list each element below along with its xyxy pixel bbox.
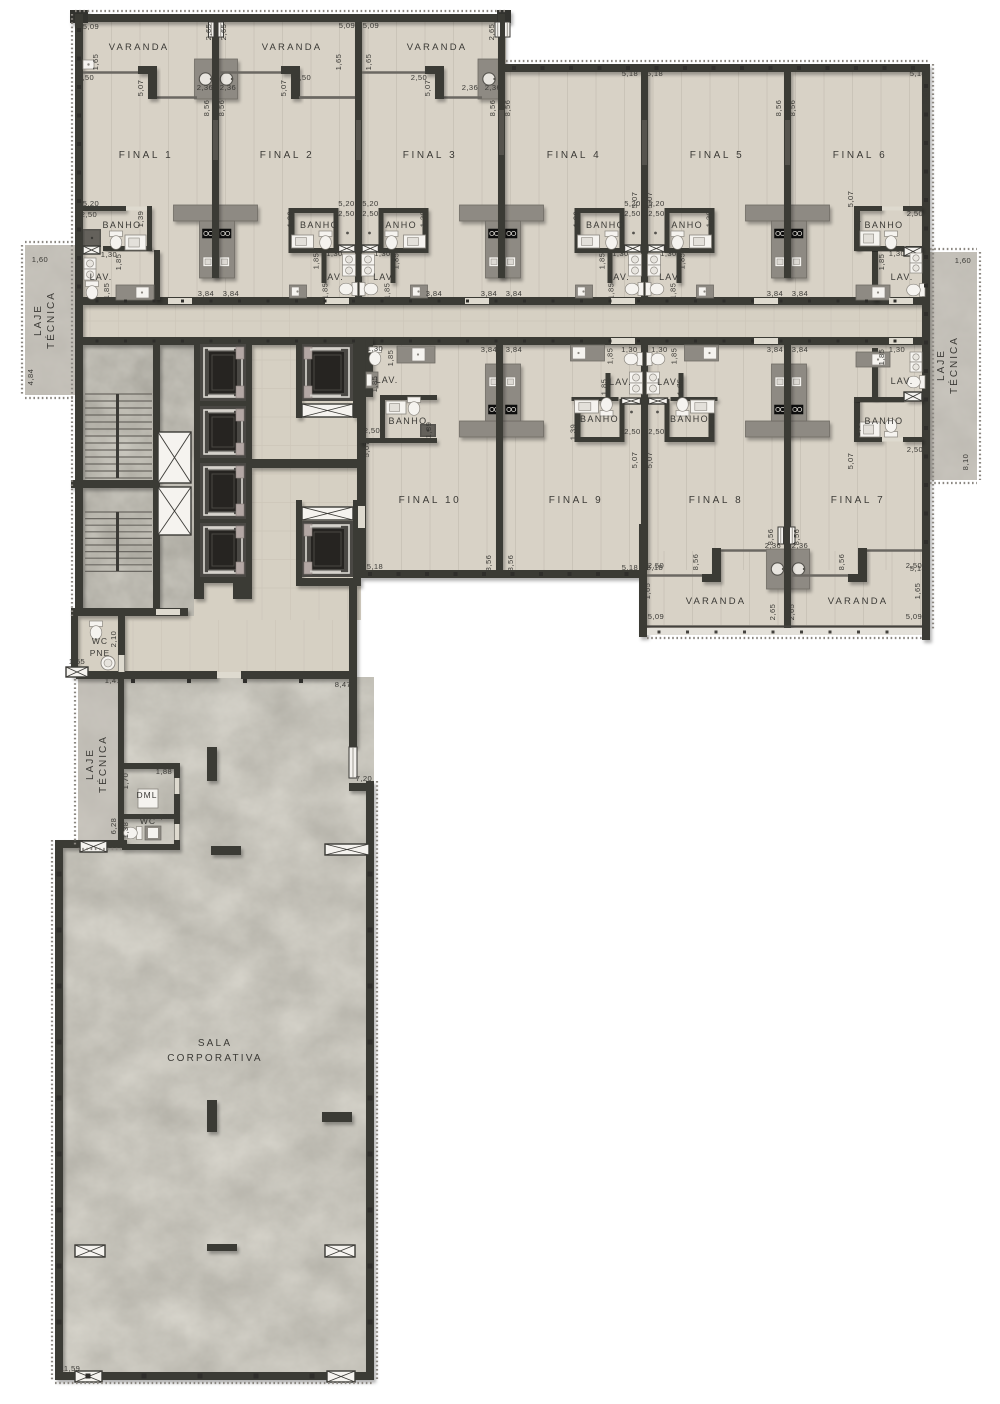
svg-text:VARANDA: VARANDA [262,42,323,53]
svg-text:2,50: 2,50 [81,210,97,219]
svg-text:7,20: 7,20 [356,774,372,783]
svg-text:8,56: 8,56 [837,554,846,571]
svg-text:1,39: 1,39 [853,211,862,228]
svg-text:CORPORATIVA: CORPORATIVA [167,1053,263,1064]
svg-text:1,85: 1,85 [670,348,679,365]
svg-text:5,09: 5,09 [906,612,922,621]
svg-text:2,36: 2,36 [792,541,808,550]
svg-text:8,56: 8,56 [202,100,211,117]
svg-text:1,85: 1,85 [877,254,886,271]
svg-text:5,07: 5,07 [630,452,639,469]
svg-text:1,39: 1,39 [286,211,295,227]
svg-text:PNE: PNE [90,648,110,658]
svg-text:BANHO: BANHO [378,220,417,230]
svg-text:LAV.: LAV. [891,272,914,282]
svg-text:2,36: 2,36 [462,83,478,92]
svg-text:1,85: 1,85 [370,376,379,393]
svg-text:1,88: 1,88 [156,767,172,776]
svg-text:WC: WC [140,816,156,826]
svg-text:2,36: 2,36 [197,83,213,92]
svg-text:2,50: 2,50 [411,73,427,82]
svg-text:3,84: 3,84 [792,345,808,354]
svg-text:LAV.: LAV. [609,377,632,387]
svg-text:BANHO: BANHO [670,414,709,424]
svg-text:1,85: 1,85 [607,283,616,300]
svg-text:5,20: 5,20 [338,199,354,208]
svg-text:1,65: 1,65 [364,54,373,71]
svg-text:LAJE: LAJE [85,748,96,780]
svg-text:2,10: 2,10 [109,631,118,648]
svg-text:1,41: 1,41 [105,676,121,685]
svg-text:1,85: 1,85 [392,253,401,270]
svg-text:1,85: 1,85 [102,283,111,300]
svg-text:5,09: 5,09 [363,21,379,30]
svg-text:1,39: 1,39 [707,424,716,440]
svg-text:FINAL 9: FINAL 9 [549,495,604,506]
svg-text:BANHO: BANHO [864,416,903,426]
svg-text:5,18: 5,18 [910,69,926,78]
svg-text:1,39: 1,39 [572,211,581,227]
svg-text:FINAL 8: FINAL 8 [689,495,744,506]
svg-text:2,50: 2,50 [907,209,923,218]
svg-text:1,39: 1,39 [424,422,433,439]
svg-text:LAV.: LAV. [90,272,113,282]
svg-text:11,59: 11,59 [60,1364,80,1373]
svg-text:2,50: 2,50 [648,561,664,570]
svg-text:2,50: 2,50 [624,209,640,218]
svg-text:1,65: 1,65 [643,583,652,600]
svg-text:2,50: 2,50 [295,73,311,82]
svg-text:1,39: 1,39 [853,420,862,437]
svg-text:DML: DML [137,790,158,800]
svg-text:1,30: 1,30 [374,249,390,258]
svg-text:1,39: 1,39 [569,424,578,440]
svg-text:1,85: 1,85 [312,253,321,270]
svg-text:LAV.: LAV. [321,272,344,282]
svg-text:FINAL 10: FINAL 10 [399,495,462,506]
svg-text:8,56: 8,56 [506,555,515,572]
svg-text:1,60: 1,60 [32,255,48,264]
svg-text:8,56: 8,56 [488,100,497,117]
svg-text:1,39: 1,39 [419,211,428,227]
svg-text:1,55: 1,55 [69,657,85,666]
svg-text:FINAL 5: FINAL 5 [690,150,745,161]
svg-text:5,20: 5,20 [83,199,99,208]
svg-text:2,50: 2,50 [648,427,664,436]
svg-text:1,85: 1,85 [676,379,685,396]
svg-text:8,47: 8,47 [335,680,351,689]
svg-text:5,18: 5,18 [367,562,383,571]
svg-text:1,85: 1,85 [669,283,678,300]
svg-text:5,18: 5,18 [622,69,638,78]
svg-text:1,30: 1,30 [326,249,342,258]
svg-text:2,50: 2,50 [906,561,922,570]
svg-text:1,85: 1,85 [678,253,687,270]
svg-text:1,85: 1,85 [386,350,395,367]
svg-text:WC: WC [92,636,108,646]
svg-text:1,39: 1,39 [136,211,145,228]
svg-text:3,84: 3,84 [426,289,442,298]
svg-text:5,07: 5,07 [645,452,654,469]
svg-text:BANHO: BANHO [580,414,619,424]
svg-text:FINAL 3: FINAL 3 [403,150,458,161]
svg-text:5,07: 5,07 [846,191,855,208]
svg-text:FINAL 7: FINAL 7 [831,495,886,506]
svg-text:8,56: 8,56 [788,100,797,117]
svg-text:2,50: 2,50 [624,427,640,436]
svg-text:VARANDA: VARANDA [109,42,170,53]
svg-text:1,88: 1,88 [156,812,172,821]
svg-text:5,07: 5,07 [846,453,855,470]
svg-text:2,50: 2,50 [338,209,354,218]
svg-text:1,30: 1,30 [889,345,905,354]
svg-text:5,07: 5,07 [630,192,639,209]
svg-text:2,50: 2,50 [364,426,380,435]
svg-text:5,07: 5,07 [279,80,288,97]
svg-text:5,09: 5,09 [339,21,355,30]
svg-text:5,07: 5,07 [645,192,654,209]
svg-text:1,65: 1,65 [334,54,343,71]
svg-text:VARANDA: VARANDA [828,596,889,607]
svg-text:BANHO: BANHO [664,220,703,230]
svg-text:VARANDA: VARANDA [686,596,747,607]
svg-text:6,28: 6,28 [109,818,118,835]
svg-text:5,18: 5,18 [647,69,663,78]
svg-text:2,65: 2,65 [219,24,228,41]
svg-text:1,30: 1,30 [367,344,383,353]
svg-text:8,10: 8,10 [961,454,970,471]
svg-text:3,84: 3,84 [198,289,214,298]
svg-text:3,84: 3,84 [767,345,783,354]
svg-text:VARANDA: VARANDA [407,42,468,53]
svg-text:1,85: 1,85 [321,283,330,300]
svg-text:3,84: 3,84 [223,289,239,298]
svg-text:LAV.: LAV. [607,272,630,282]
svg-text:1,85: 1,85 [383,283,392,300]
svg-text:5,09: 5,09 [83,22,99,31]
svg-text:8,56: 8,56 [774,100,783,117]
svg-text:BANHO: BANHO [388,416,427,426]
svg-text:5,07: 5,07 [136,80,145,97]
svg-text:1,30: 1,30 [651,345,667,354]
svg-text:1,85: 1,85 [877,349,886,366]
svg-text:FINAL 1: FINAL 1 [119,150,174,161]
svg-text:3,84: 3,84 [506,345,522,354]
svg-text:2,36: 2,36 [485,83,501,92]
svg-text:3,84: 3,84 [481,289,497,298]
svg-text:1,65: 1,65 [91,54,100,71]
svg-text:1,30: 1,30 [612,249,628,258]
svg-text:1,65: 1,65 [913,583,922,600]
svg-text:TÉCNICA: TÉCNICA [96,735,109,793]
svg-text:2,50: 2,50 [362,209,378,218]
svg-text:FINAL 2: FINAL 2 [260,150,315,161]
svg-text:1,39: 1,39 [705,211,714,227]
svg-text:BANHO: BANHO [586,220,625,230]
svg-text:SALA: SALA [198,1038,232,1049]
svg-text:TÉCNICA: TÉCNICA [44,291,57,349]
svg-text:8,56: 8,56 [920,88,929,105]
svg-text:8,56: 8,56 [691,554,700,571]
svg-text:5,09: 5,09 [648,612,664,621]
svg-text:2,50: 2,50 [907,445,923,454]
svg-text:2,65: 2,65 [787,604,796,621]
svg-text:4,84: 4,84 [26,369,35,386]
svg-text:LAJE: LAJE [936,349,947,381]
svg-text:LAJE: LAJE [33,304,44,336]
svg-text:LAV.: LAV. [891,376,914,386]
svg-text:1,70: 1,70 [121,773,130,790]
svg-text:8,56: 8,56 [217,100,226,117]
svg-text:5,07: 5,07 [362,441,371,458]
svg-text:3,84: 3,84 [506,289,522,298]
svg-text:19,94: 19,94 [55,850,64,872]
svg-text:LAV.: LAV. [659,272,682,282]
svg-text:8,56: 8,56 [484,555,493,572]
svg-text:5,07: 5,07 [423,80,432,97]
svg-text:2,65: 2,65 [768,604,777,621]
svg-text:3,84: 3,84 [767,289,783,298]
svg-text:LAV.: LAV. [376,375,399,385]
svg-text:TÉCNICA: TÉCNICA [947,336,960,394]
svg-text:1,30: 1,30 [660,249,676,258]
svg-text:FINAL 6: FINAL 6 [833,150,888,161]
svg-text:1,85: 1,85 [600,379,609,396]
svg-text:2,50: 2,50 [78,73,94,82]
svg-text:2,36: 2,36 [765,541,781,550]
svg-text:LAV.: LAV. [373,272,396,282]
svg-text:3,84: 3,84 [792,289,808,298]
svg-text:FINAL 4: FINAL 4 [547,150,602,161]
svg-text:2,65: 2,65 [487,24,496,41]
svg-text:BANHO: BANHO [300,220,339,230]
svg-text:1,85: 1,85 [114,254,123,271]
svg-text:5,18: 5,18 [622,563,638,572]
svg-text:3,84: 3,84 [481,345,497,354]
svg-text:1,60: 1,60 [955,256,971,265]
svg-text:2,50: 2,50 [648,209,664,218]
svg-text:1,85: 1,85 [606,348,615,365]
svg-text:1,30: 1,30 [621,345,637,354]
svg-text:1,85: 1,85 [598,253,607,270]
svg-text:2,65: 2,65 [204,24,213,41]
svg-text:1,30: 1,30 [889,249,905,258]
svg-text:5,20: 5,20 [362,199,378,208]
svg-text:1,38: 1,38 [121,822,130,839]
svg-text:2,36: 2,36 [220,83,236,92]
svg-text:8,56: 8,56 [503,100,512,117]
svg-text:BANHO: BANHO [864,220,903,230]
